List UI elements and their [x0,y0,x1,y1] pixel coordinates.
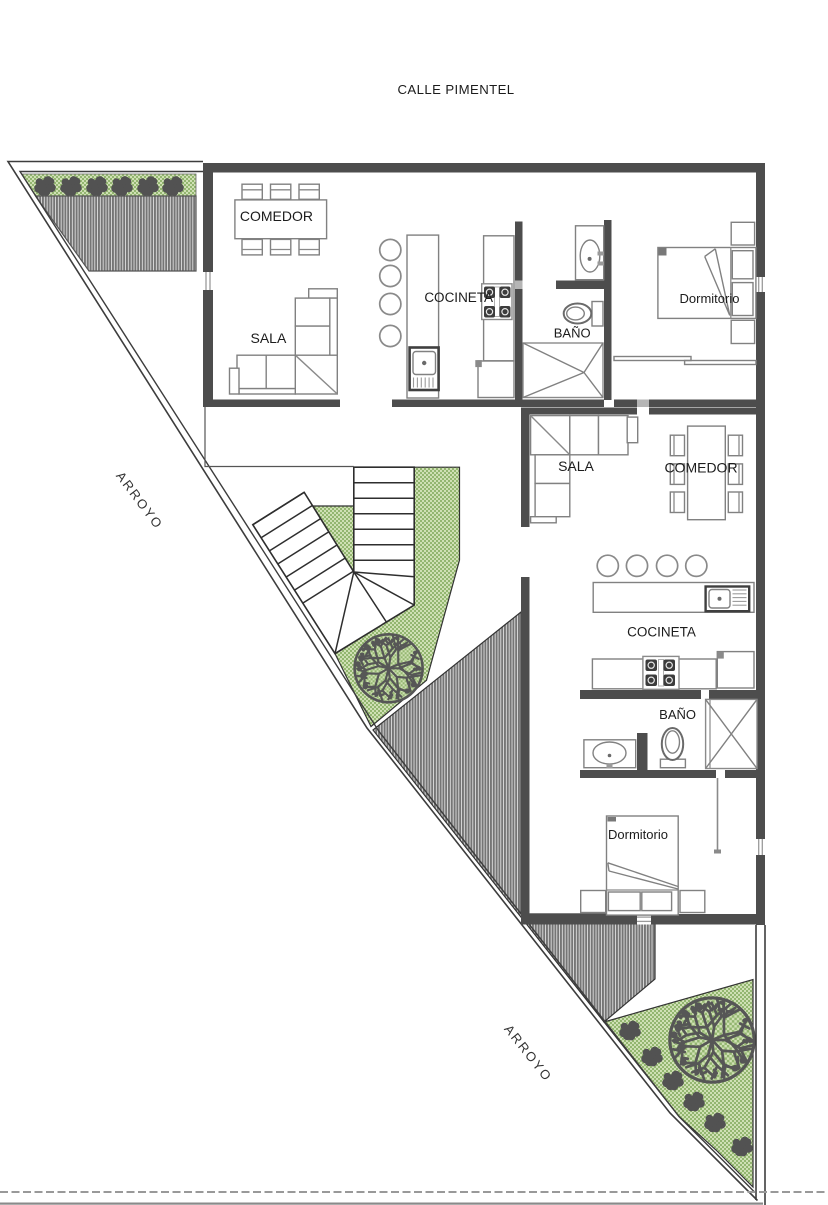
svg-text:SALA: SALA [558,458,594,474]
svg-text:SALA: SALA [250,330,286,346]
svg-text:COCINETA: COCINETA [424,290,493,305]
svg-text:BAÑO: BAÑO [659,707,696,722]
svg-text:COMEDOR: COMEDOR [240,208,313,224]
svg-text:CALLE PIMENTEL: CALLE PIMENTEL [398,82,515,97]
svg-text:BAÑO: BAÑO [554,326,591,341]
svg-text:COCINETA: COCINETA [627,625,696,640]
svg-text:COMEDOR: COMEDOR [664,460,737,476]
svg-text:Dormitorio: Dormitorio [680,291,740,306]
svg-text:Dormitorio: Dormitorio [608,827,668,842]
